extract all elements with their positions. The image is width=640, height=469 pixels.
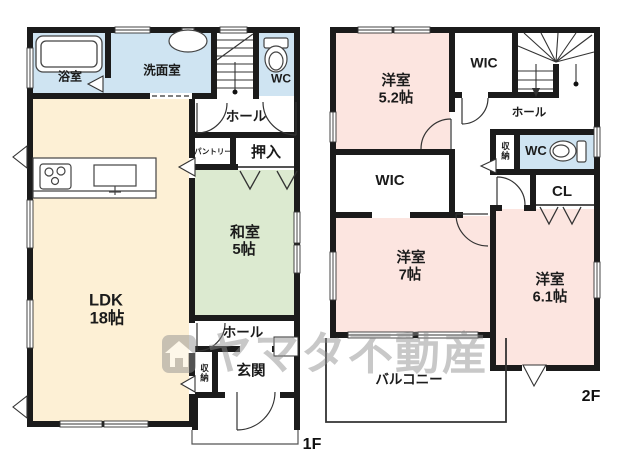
label-washitsu-size: 5帖 <box>232 242 255 258</box>
plan-linework <box>0 0 640 469</box>
toilet-icon-2f <box>550 141 586 162</box>
label-bedroom61-size: 6.1帖 <box>533 290 568 305</box>
label-storage-2f: 収納 <box>501 142 510 161</box>
stairs-1f <box>217 34 253 95</box>
toilet-icon-1f <box>264 38 288 72</box>
label-ldk-size: 18帖 <box>90 310 125 327</box>
label-pantry: パントリー <box>194 148 232 156</box>
label-wic-top: WIC <box>470 56 497 71</box>
bathtub-icon <box>36 36 102 72</box>
label-wc-2f: WC <box>525 144 547 158</box>
wedge-symbols <box>13 76 546 418</box>
label-washitsu-name: 和室 <box>230 225 260 241</box>
porch-outline <box>192 430 298 444</box>
label-wc-1f: WC <box>271 73 291 86</box>
label-bedroom7-name: 洋室 <box>397 251 426 266</box>
label-wic-mid: WIC <box>375 173 404 189</box>
shoe-cabinet <box>274 337 298 356</box>
label-ldk-name: LDK <box>89 292 123 309</box>
floor-label-2f: 2F <box>582 388 601 406</box>
label-entrance: 玄関 <box>237 364 266 379</box>
floor-plan: 浴室 洗面室 WC ホール パントリー 押入 和室 5帖 LDK 18帖 ホール… <box>0 0 640 469</box>
label-storage-1f: 収納 <box>200 364 209 383</box>
label-bedroom61-name: 洋室 <box>536 273 565 288</box>
floor-label-1f: 1F <box>303 436 322 454</box>
label-washroom: 洗面室 <box>143 64 181 77</box>
label-hall-upper-1f: ホール <box>226 110 267 124</box>
label-balcony: バルコニー <box>375 373 442 387</box>
label-hall-2f: ホール <box>512 107 547 119</box>
label-bedroom52-size: 5.2帖 <box>379 91 414 106</box>
label-oshiire: 押入 <box>251 145 281 161</box>
kitchen-counter <box>33 158 156 198</box>
label-cl: CL <box>552 184 572 200</box>
stove-icon <box>40 164 71 189</box>
door-arcs <box>197 98 525 430</box>
label-hall-lower-1f: ホール <box>223 326 264 340</box>
label-bedroom7-size: 7帖 <box>399 268 422 283</box>
label-bath: 浴室 <box>58 71 82 84</box>
label-bedroom52-name: 洋室 <box>382 74 411 89</box>
